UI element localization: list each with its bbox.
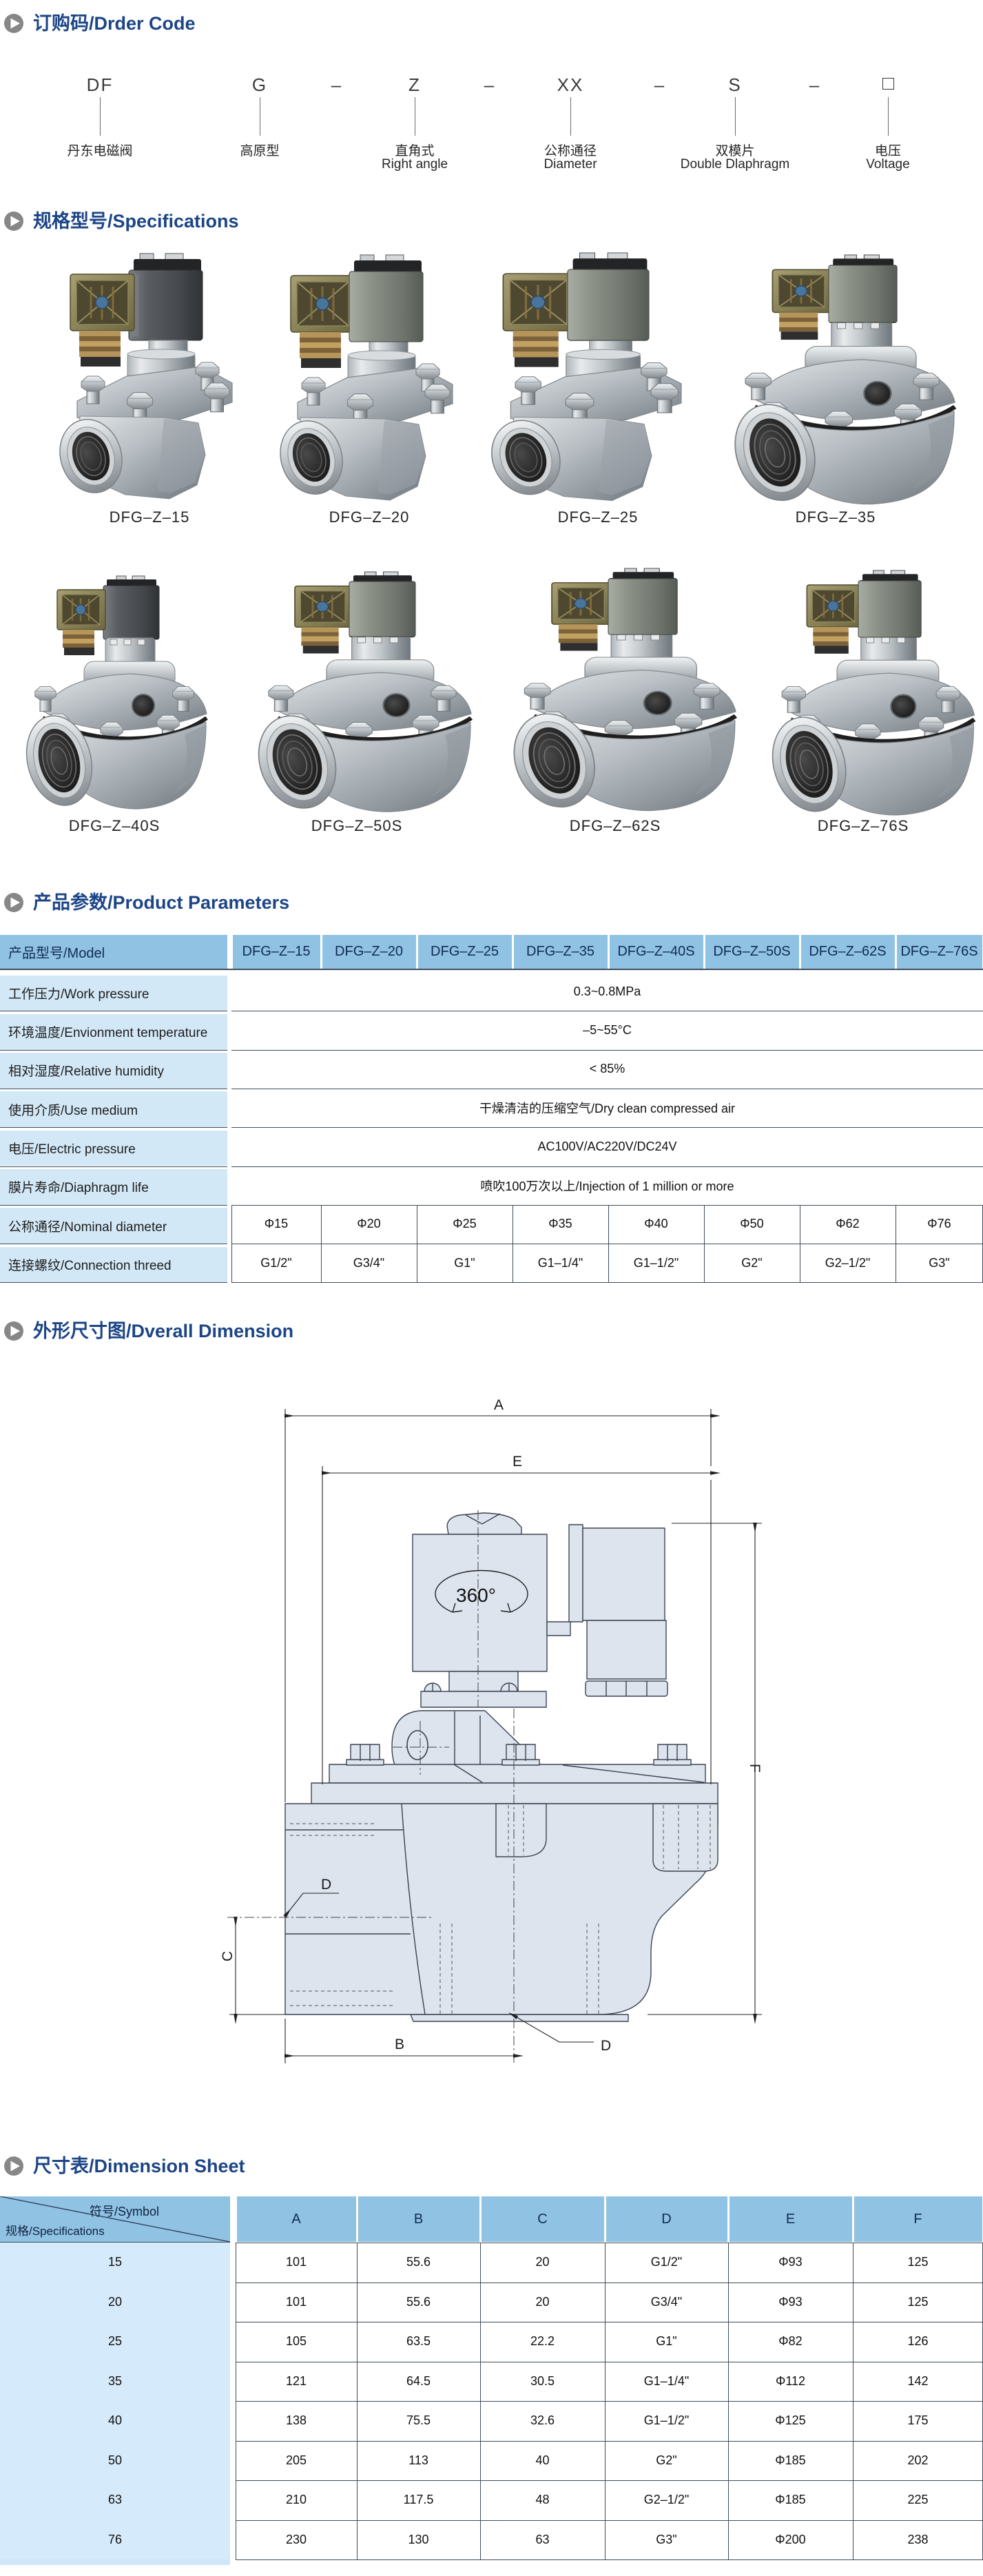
svg-text:B: B — [395, 2037, 404, 2052]
svg-text:D: D — [321, 1877, 331, 1893]
svg-text:F: F — [747, 1764, 763, 1773]
svg-text:D: D — [601, 2038, 611, 2054]
svg-text:C: C — [220, 1951, 236, 1961]
svg-text:A: A — [494, 1397, 504, 1413]
svg-text:E: E — [513, 1454, 522, 1470]
svg-text:360°: 360° — [456, 1585, 496, 1606]
